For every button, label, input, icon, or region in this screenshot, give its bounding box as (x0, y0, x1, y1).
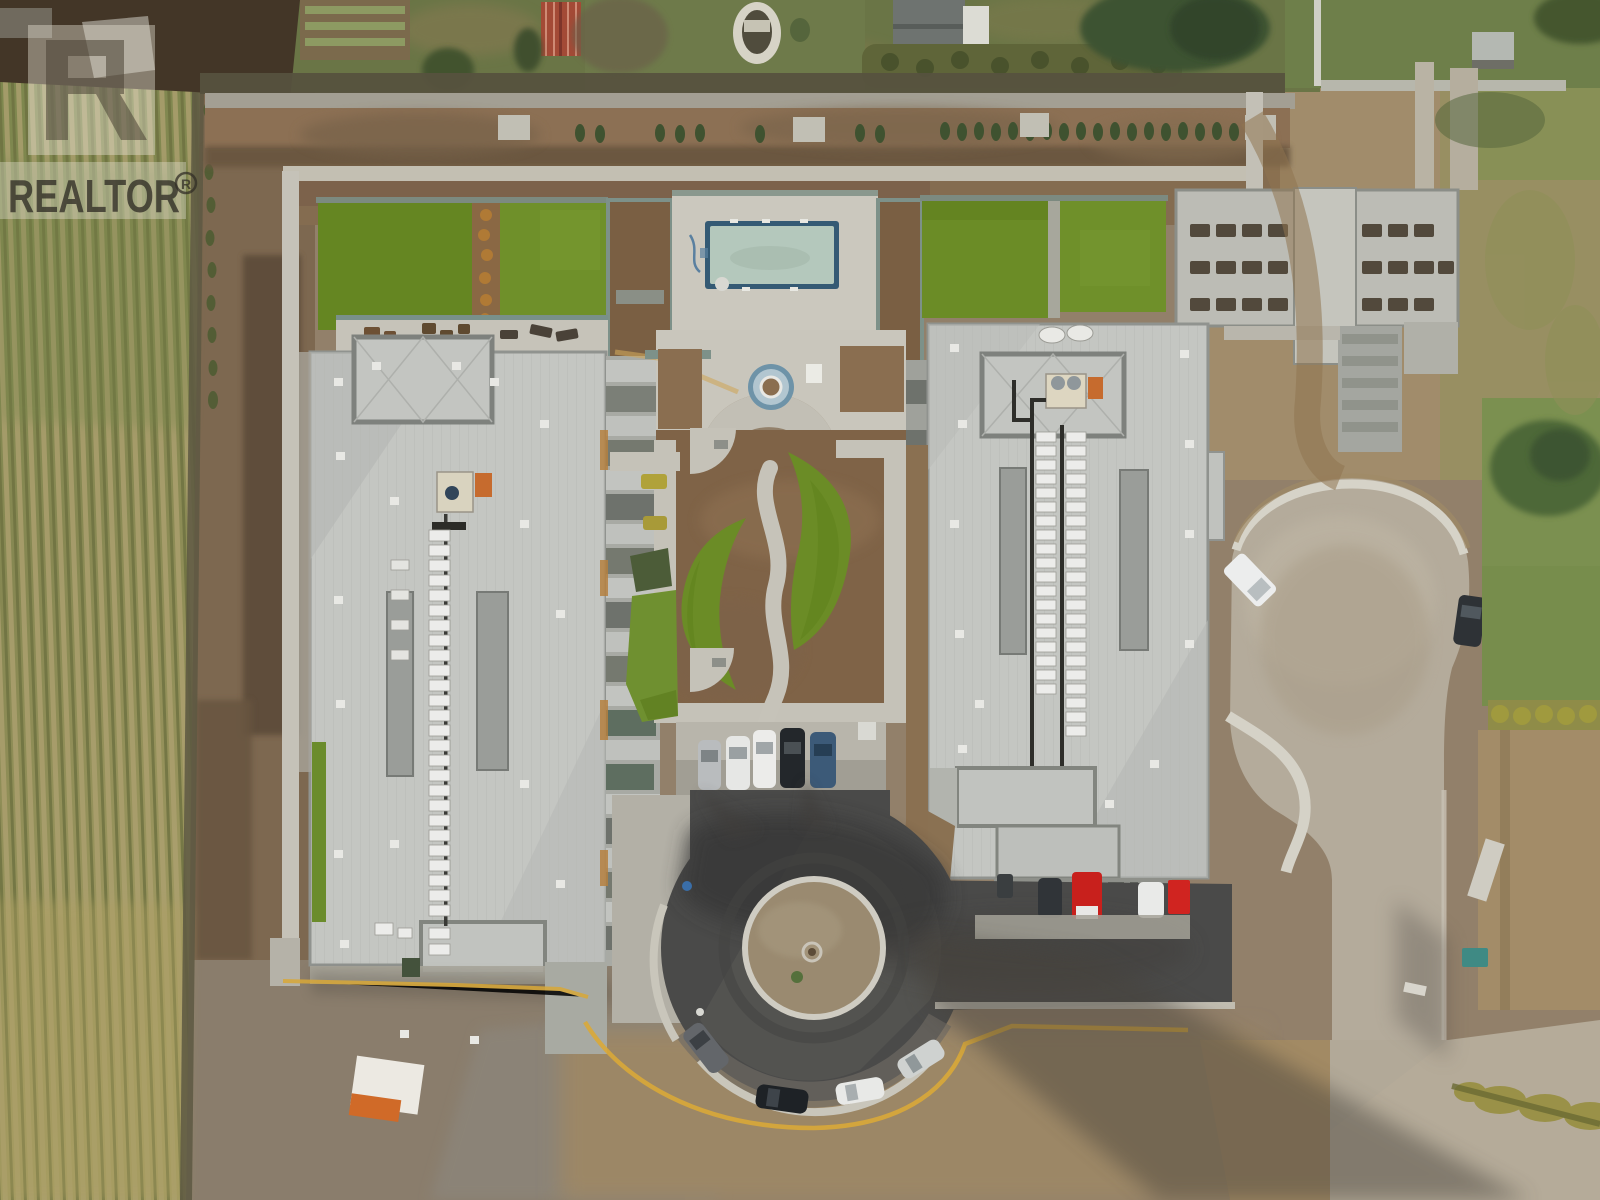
svg-text:R: R (181, 176, 191, 192)
svg-text:REALTOR: REALTOR (8, 170, 180, 222)
